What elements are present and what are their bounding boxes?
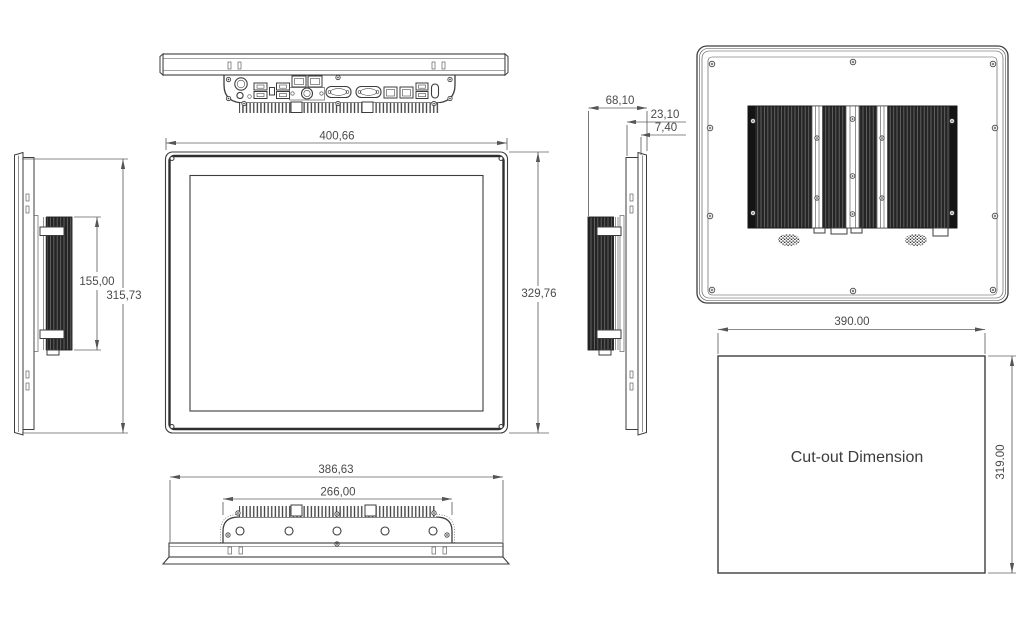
- dim-cutout-width: 390.00: [718, 316, 985, 354]
- dim-right-bezel-depth: 7,40: [641, 122, 686, 155]
- reset-button: [237, 92, 243, 98]
- dim-left-heatsink-height: 155,00: [74, 217, 115, 350]
- dim-front-width: 400,66: [166, 131, 507, 151]
- dim-label-left-heatsink-height: 155,00: [79, 276, 114, 288]
- mounting-clamp: [597, 227, 621, 236]
- panel-pc-dimensional-drawing: 400,66 329,76 155,00: [0, 0, 1024, 617]
- usb-port-stack-1: [254, 83, 267, 99]
- usb-port-stack-2: [277, 83, 290, 99]
- front-view: [166, 152, 508, 433]
- mounting-clamp: [40, 227, 64, 236]
- cutout-view: Cut-out Dimension 390.00 319.00: [718, 316, 1016, 573]
- speaker-vent: [905, 234, 927, 246]
- dim-left-overall-height: 315,73: [22, 159, 142, 433]
- dim-bottom-overall-width: 386,63: [170, 464, 503, 542]
- top-bezel-slots: [228, 62, 445, 69]
- dim-front-height: 329,76: [509, 152, 557, 433]
- dim-label-front-height: 329,76: [521, 288, 556, 300]
- rear-view: [697, 46, 1008, 303]
- bottom-chassis-outline: [223, 517, 452, 543]
- lan-ports: [290, 76, 325, 100]
- cutout-label: Cut-out Dimension: [791, 449, 924, 466]
- bottom-view: [163, 505, 509, 564]
- fin-notch-tab: [291, 505, 302, 516]
- round-connector: [302, 88, 313, 99]
- mounting-clamp: [40, 330, 64, 339]
- dim-label-bottom-heatsink-width: 266,00: [320, 487, 355, 499]
- led-indicator: [248, 95, 252, 99]
- bottom-mount-holes: [236, 527, 437, 535]
- db9-serial-port-2: [356, 87, 381, 98]
- mounting-clamp: [597, 330, 621, 339]
- bottom-bezel-lip: [163, 557, 509, 564]
- usb-port-stack-3: [416, 83, 428, 99]
- expansion-port-2: [400, 87, 413, 98]
- dim-label-front-width: 400,66: [319, 131, 354, 143]
- db9-serial-port-1: [326, 87, 351, 98]
- right-side-view: [588, 153, 647, 436]
- display-area: [190, 176, 483, 412]
- top-bezel-bar: [163, 54, 505, 75]
- front-bezel-outline: [166, 152, 508, 433]
- small-io-port: [270, 88, 275, 96]
- dim-label-right-rear-depth: 23,10: [651, 109, 680, 121]
- power-jack-port: [235, 78, 247, 90]
- speaker-vent: [778, 234, 800, 246]
- expansion-port-1: [384, 87, 397, 98]
- dim-label-right-overall-depth: 68,10: [606, 95, 635, 107]
- dim-label-right-bezel-depth: 7,40: [655, 122, 677, 134]
- fin-notch-tab: [365, 505, 376, 516]
- dim-cutout-height: 319.00: [988, 356, 1016, 573]
- dim-label-cutout-width: 390.00: [834, 316, 869, 328]
- power-button: [432, 84, 439, 98]
- fin-notch-tab: [291, 102, 302, 113]
- dim-label-bottom-overall-width: 386,63: [318, 464, 353, 476]
- rear-bottom-tabs: [814, 228, 948, 236]
- top-view: [160, 54, 508, 113]
- fin-notch-tab: [362, 102, 373, 113]
- dim-label-left-overall-height: 315,73: [106, 290, 141, 302]
- dim-label-cutout-height: 319.00: [995, 444, 1007, 479]
- bottom-bezel-slots: [228, 547, 447, 554]
- left-side-view: [15, 153, 73, 436]
